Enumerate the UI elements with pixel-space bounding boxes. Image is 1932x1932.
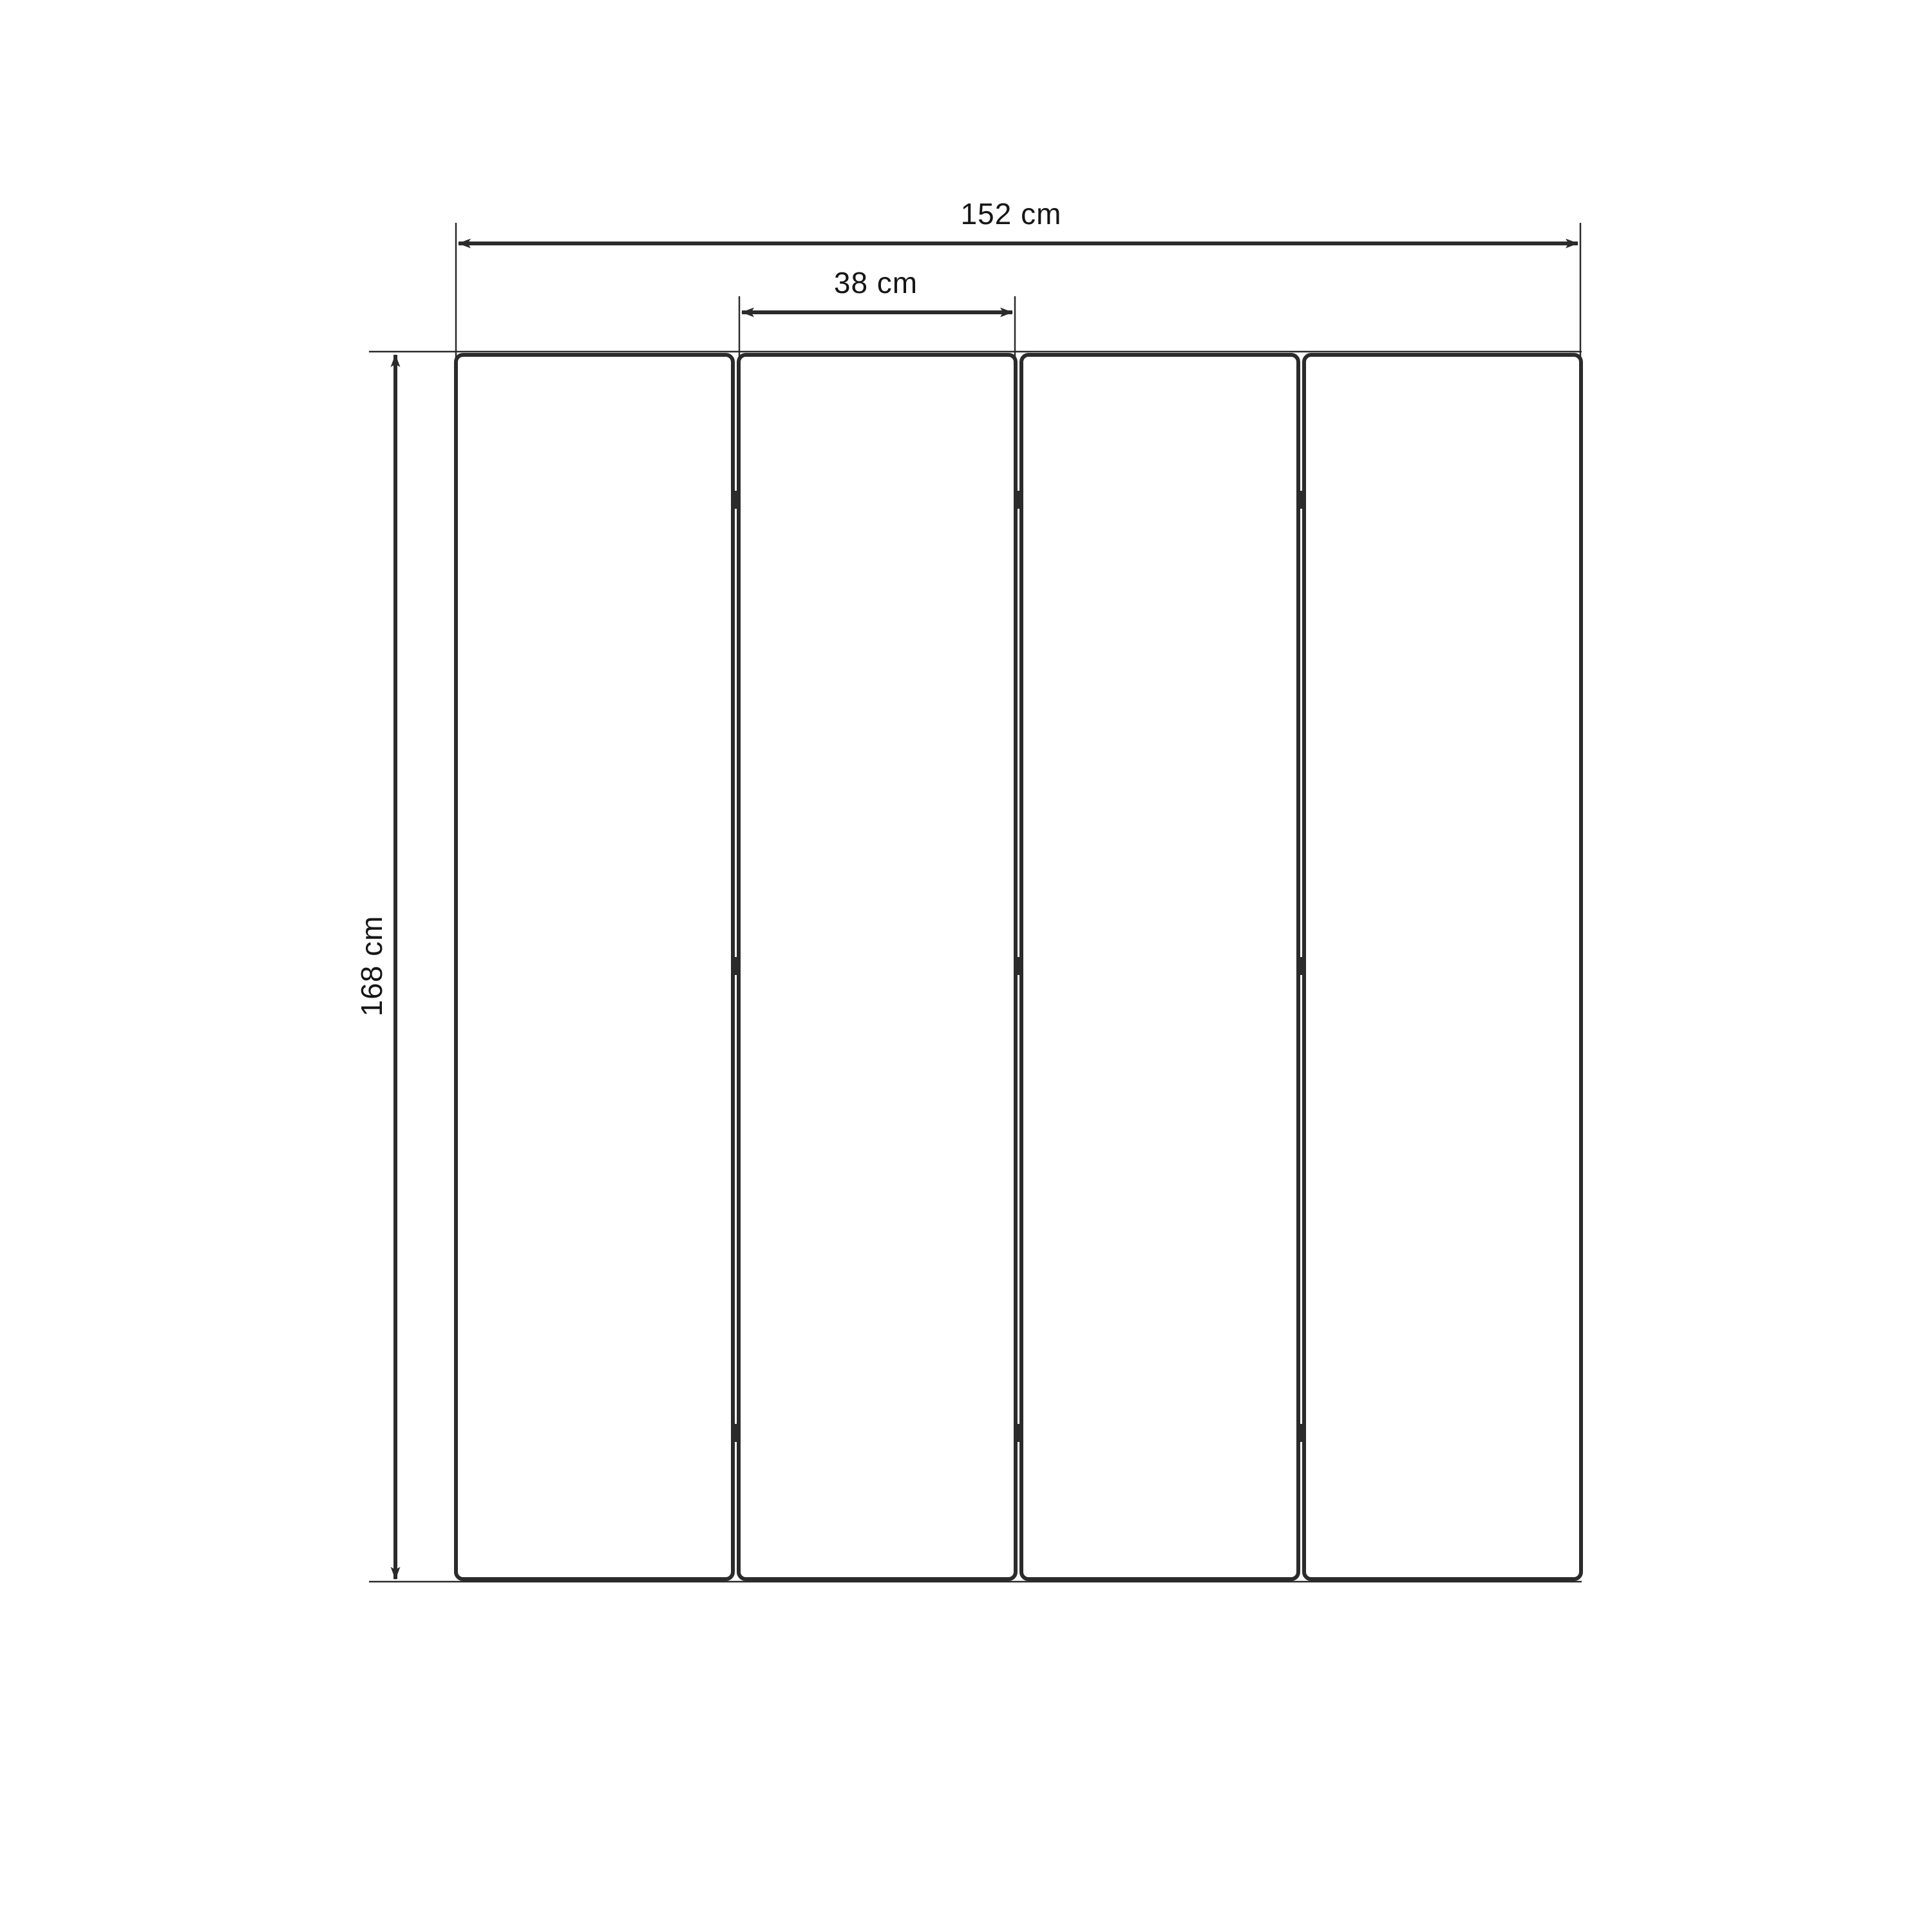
hinge-mark	[1297, 1424, 1306, 1442]
panel-4	[1304, 355, 1581, 1579]
hinge-mark	[1297, 491, 1306, 509]
hinge-mark	[732, 957, 741, 975]
hinge-mark	[732, 491, 741, 509]
total-width-dimension-label: 152 cm	[961, 197, 1062, 231]
panel-width-dimension-label: 38 cm	[834, 266, 918, 299]
hinge-mark	[1014, 1424, 1023, 1442]
hinge-mark	[1014, 957, 1023, 975]
panel-2	[739, 355, 1016, 1579]
hinge-mark	[732, 1424, 741, 1442]
hinge-mark	[1297, 957, 1306, 975]
hinge-mark	[1014, 491, 1023, 509]
panel-3	[1021, 355, 1298, 1579]
panel-1	[456, 355, 733, 1579]
dimension-diagram: 152 cm 38 cm 168 cm	[0, 0, 1932, 1932]
height-dimension-label: 168 cm	[355, 916, 388, 1017]
